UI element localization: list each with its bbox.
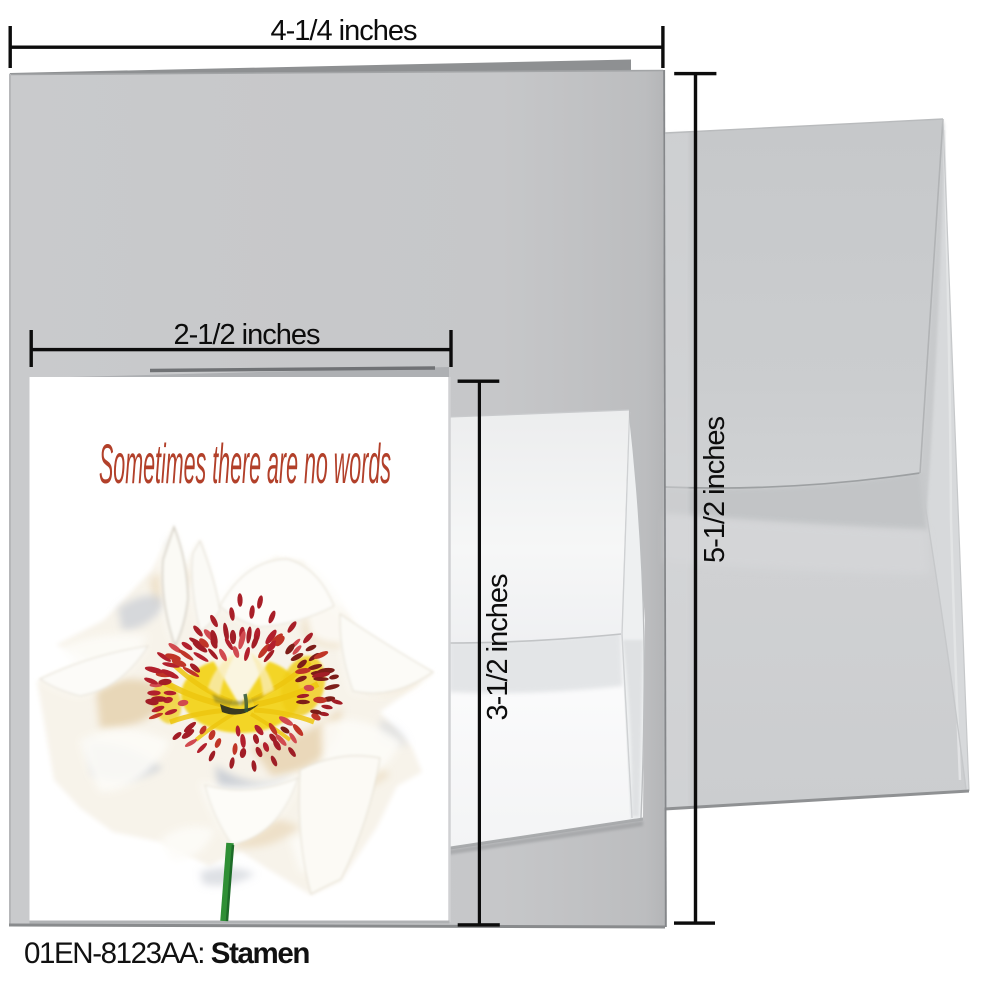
svg-text:01EN-8123AA: Stamen: 01EN-8123AA: Stamen <box>24 937 309 970</box>
svg-text:5-1/2 inches: 5-1/2 inches <box>699 417 731 563</box>
svg-text:4-1/4 inches: 4-1/4 inches <box>271 15 417 47</box>
svg-text:Sometimes there are no words: Sometimes there are no words <box>99 432 391 495</box>
svg-text:3-1/2 inches: 3-1/2 inches <box>482 574 514 720</box>
svg-text:2-1/2 inches: 2-1/2 inches <box>174 319 320 351</box>
